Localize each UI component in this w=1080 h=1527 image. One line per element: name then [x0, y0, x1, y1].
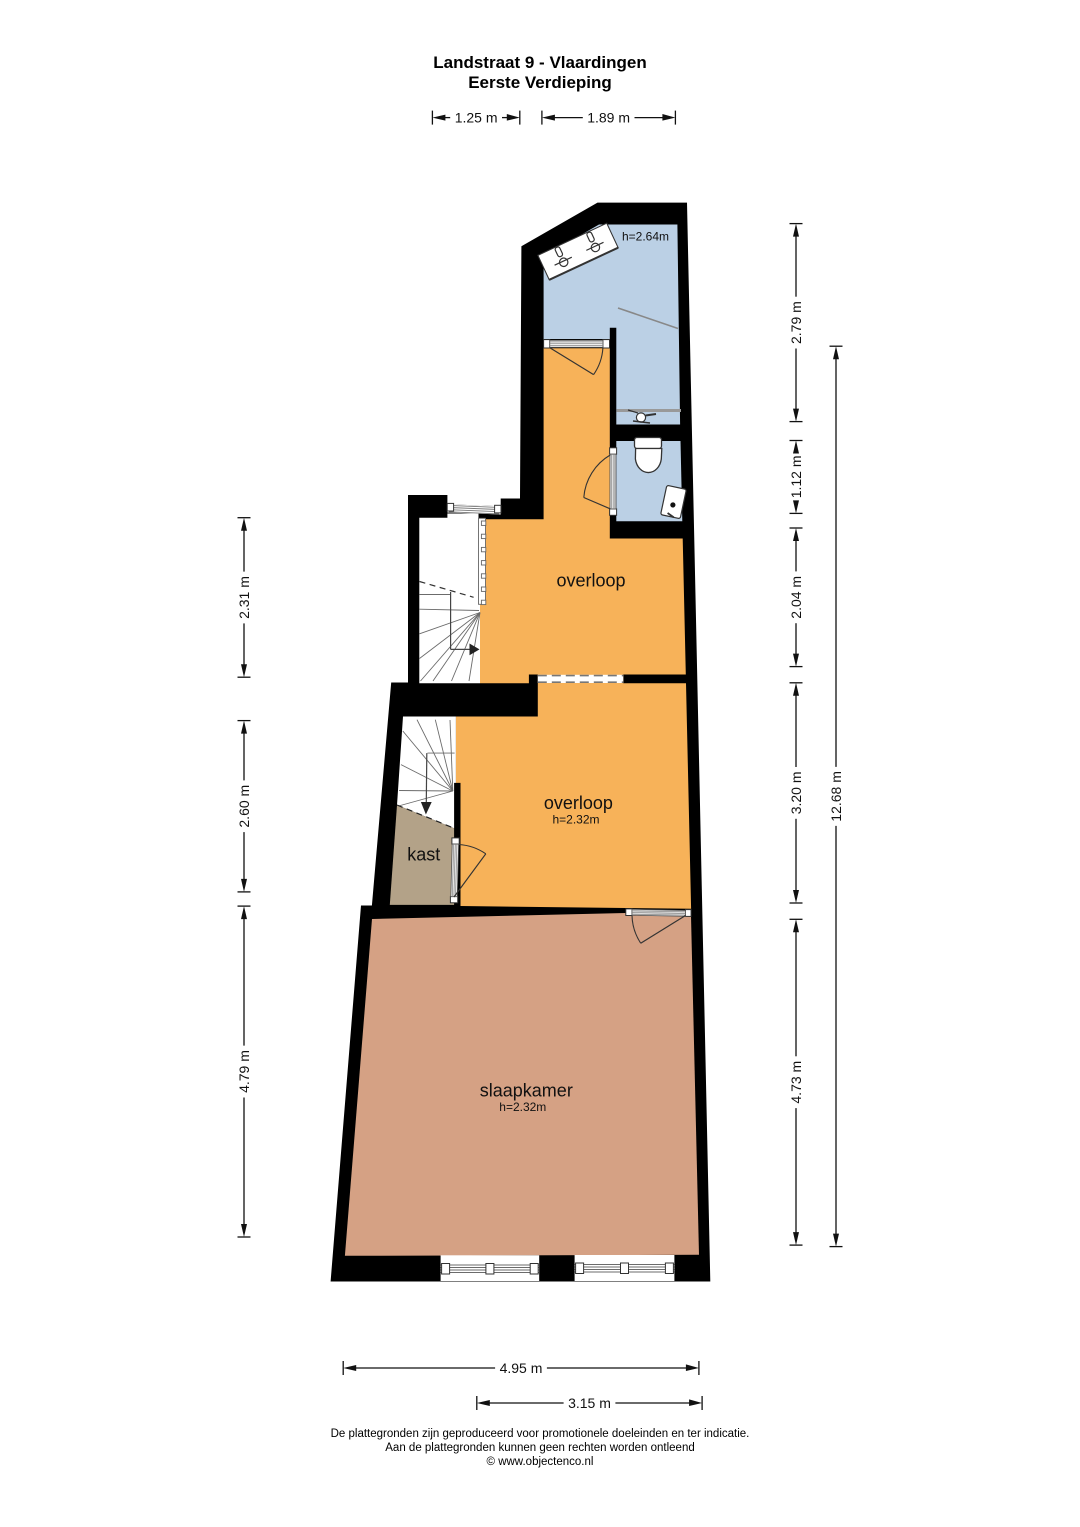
- svg-text:2.60 m: 2.60 m: [236, 785, 252, 828]
- svg-text:3.20 m: 3.20 m: [788, 771, 804, 814]
- svg-text:h=2.32m: h=2.32m: [499, 1100, 546, 1114]
- svg-text:1.89 m: 1.89 m: [587, 110, 630, 126]
- svg-text:overloop: overloop: [556, 571, 625, 591]
- svg-text:2.04 m: 2.04 m: [788, 576, 804, 619]
- svg-text:2.31 m: 2.31 m: [236, 576, 252, 619]
- svg-text:3.15 m: 3.15 m: [568, 1395, 611, 1411]
- svg-text:12.68 m: 12.68 m: [828, 771, 844, 822]
- svg-text:kast: kast: [407, 845, 440, 865]
- svg-text:1.12 m: 1.12 m: [788, 455, 804, 498]
- svg-text:4.95 m: 4.95 m: [500, 1360, 543, 1376]
- svg-text:overloop: overloop: [544, 793, 613, 813]
- svg-text:4.73 m: 4.73 m: [788, 1061, 804, 1104]
- svg-text:2.79 m: 2.79 m: [788, 301, 804, 344]
- svg-text:h=2.32m: h=2.32m: [552, 812, 599, 826]
- svg-text:4.79 m: 4.79 m: [236, 1050, 252, 1093]
- svg-text:h=2.64m: h=2.64m: [622, 230, 669, 244]
- svg-text:1.25 m: 1.25 m: [455, 110, 498, 126]
- svg-text:slaapkamer: slaapkamer: [480, 1080, 573, 1100]
